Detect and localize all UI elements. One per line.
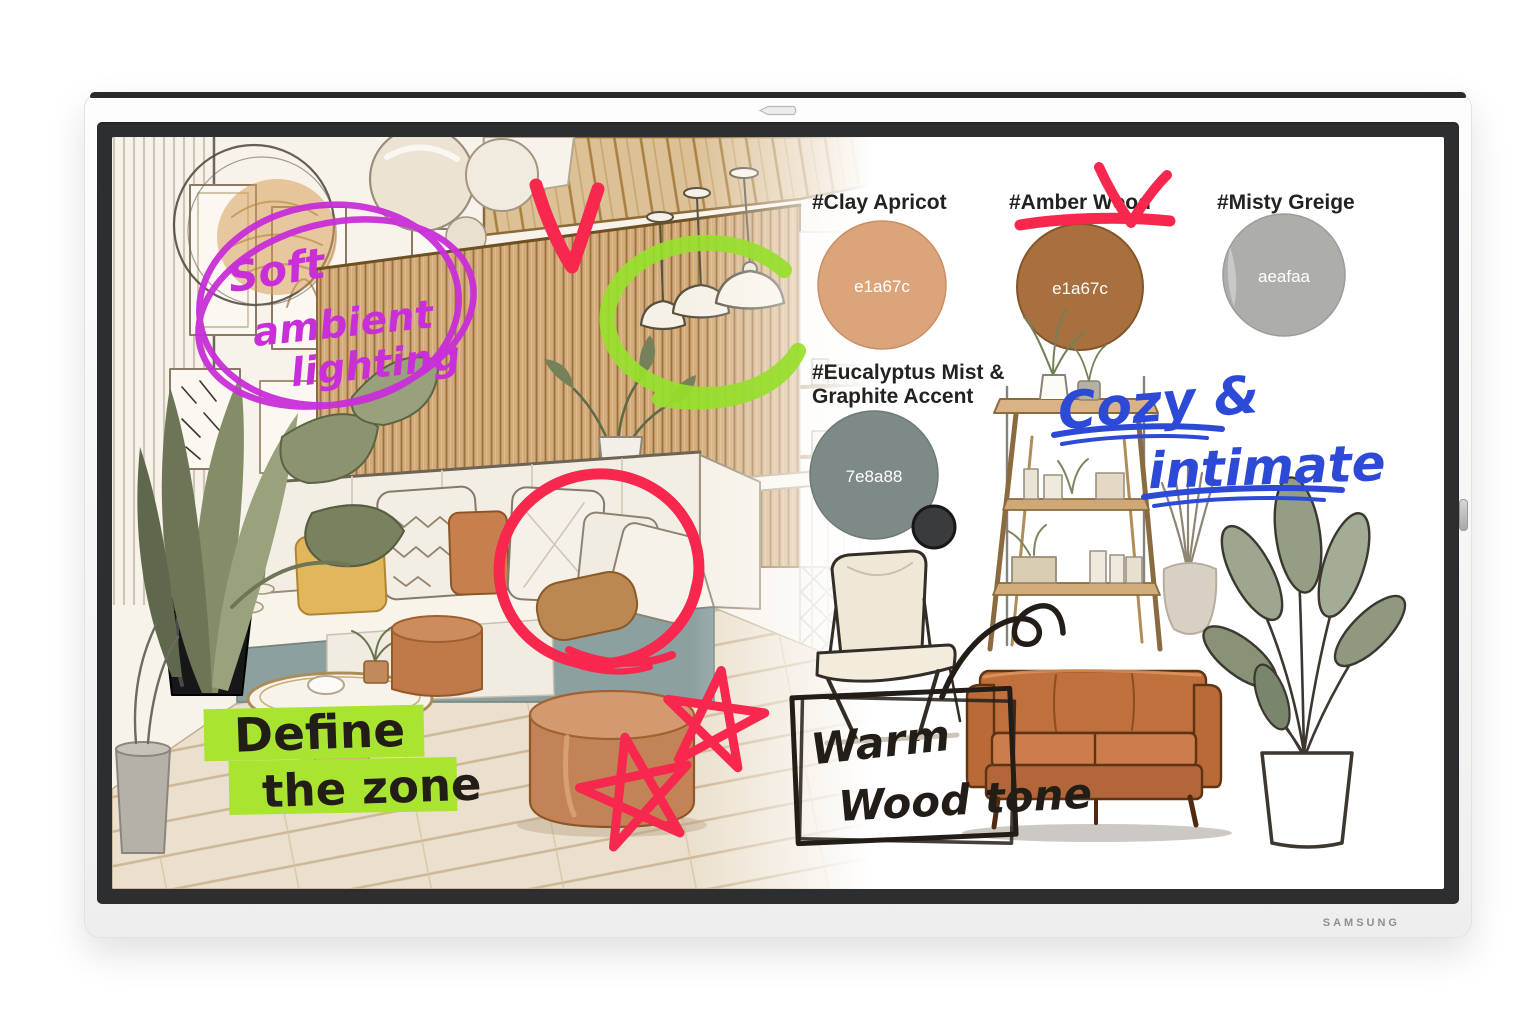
swatch-label: #Amber Wood <box>1009 191 1151 214</box>
swatch-misty-greige: #Misty Greige aeafaa <box>1217 191 1355 336</box>
samsung-flip-display: #Clay Apricot e1a67c #Amber Wood e1a67c … <box>84 92 1472 938</box>
graphite-accent-circle <box>913 506 955 548</box>
swatch-label-line1: #Eucalyptus Mist & <box>812 361 1005 384</box>
power-button[interactable] <box>1459 499 1468 531</box>
page-background: #Clay Apricot e1a67c #Amber Wood e1a67c … <box>0 0 1536 1024</box>
swatch-hex: aeafaa <box>1258 267 1311 286</box>
screen-bezel: #Clay Apricot e1a67c #Amber Wood e1a67c … <box>97 122 1459 904</box>
swatch-label: #Clay Apricot <box>812 191 947 214</box>
red-underline-amber <box>1020 218 1170 225</box>
whiteboard-screen: #Clay Apricot e1a67c #Amber Wood e1a67c … <box>112 137 1444 889</box>
potted-plant-right <box>1194 475 1415 847</box>
swatch-label-line2: Graphite Accent <box>812 385 973 408</box>
ladder-shelf-sketch <box>990 309 1160 649</box>
swatch-eucalyptus-graphite: #Eucalyptus Mist & Graphite Accent 7e8a8… <box>810 361 1005 548</box>
swatch-label: #Misty Greige <box>1217 191 1355 214</box>
device-top-edge <box>90 92 1466 98</box>
pen-tray-icon <box>757 103 799 114</box>
whiteboard-canvas[interactable]: #Clay Apricot e1a67c #Amber Wood e1a67c … <box>112 137 1444 889</box>
side-drum-table <box>392 616 482 696</box>
swatch-hex: e1a67c <box>1052 279 1108 298</box>
define-line1: Define <box>233 703 406 764</box>
define-line2: the zone <box>261 757 482 818</box>
brand-logo: SAMSUNG <box>1323 917 1400 929</box>
swatch-hex: 7e8a88 <box>846 467 903 486</box>
swatch-hex: e1a67c <box>854 277 910 296</box>
